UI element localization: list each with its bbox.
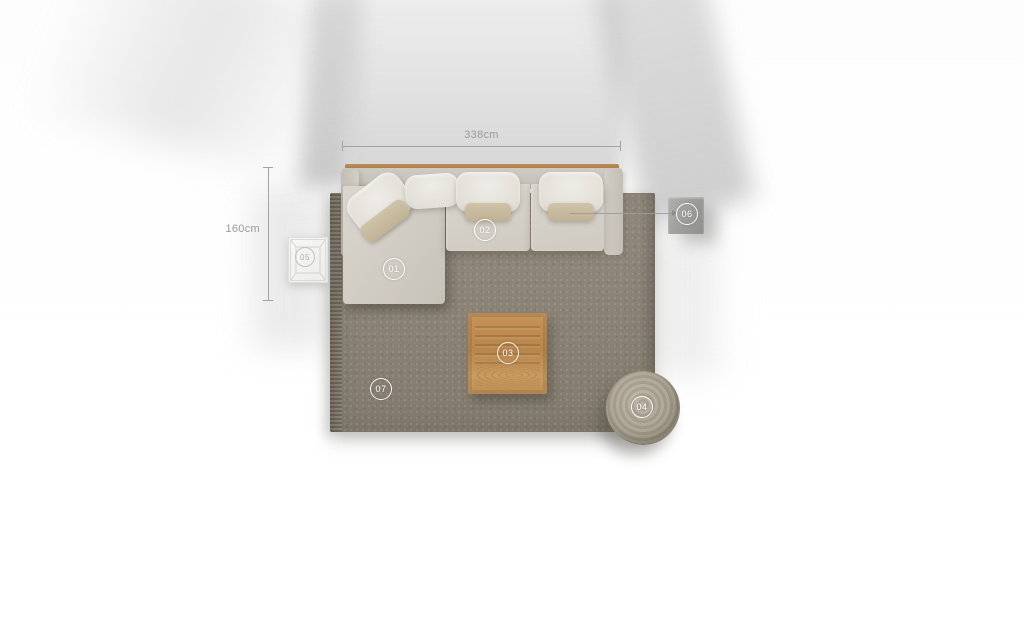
marker-01-sofa-chaise[interactable]: 01	[383, 258, 405, 280]
dimension-line-height	[268, 167, 269, 301]
soft-shadow-top-left	[42, 0, 357, 181]
floorplan-scene: 338cm 160cm 01 02 03 04 05 06 07	[0, 0, 1024, 639]
marker-03-coffee-table[interactable]: 03	[497, 342, 519, 364]
chaise-back-cushion	[404, 172, 460, 210]
marker-04-pouf[interactable]: 04	[631, 396, 653, 418]
dimension-tick-width-right	[620, 141, 621, 151]
marker-05-side-table[interactable]: 05	[295, 247, 315, 267]
dimension-label-height: 160cm	[222, 223, 260, 235]
soft-shadow-band-left	[299, 0, 363, 190]
sofa-armrest-right	[604, 169, 623, 255]
marker-07-rug[interactable]: 07	[370, 378, 392, 400]
middle-accent-pillow	[465, 203, 511, 221]
right-accent-pillow	[548, 203, 594, 221]
coffee-table-grain	[475, 364, 540, 386]
dimension-tick-width-left	[342, 141, 343, 151]
marker-02-sofa-seat[interactable]: 02	[474, 219, 496, 241]
leader-line-06	[570, 213, 674, 214]
soft-shadow-above-sofa	[350, 0, 622, 178]
dimension-tick-height-bottom	[263, 300, 273, 301]
soft-shadow-right-mid	[652, 232, 718, 378]
dimension-line-width	[342, 146, 621, 147]
marker-06-side-table[interactable]: 06	[676, 203, 698, 225]
dimension-label-width: 338cm	[342, 129, 621, 141]
dimension-tick-height-top	[263, 167, 273, 168]
